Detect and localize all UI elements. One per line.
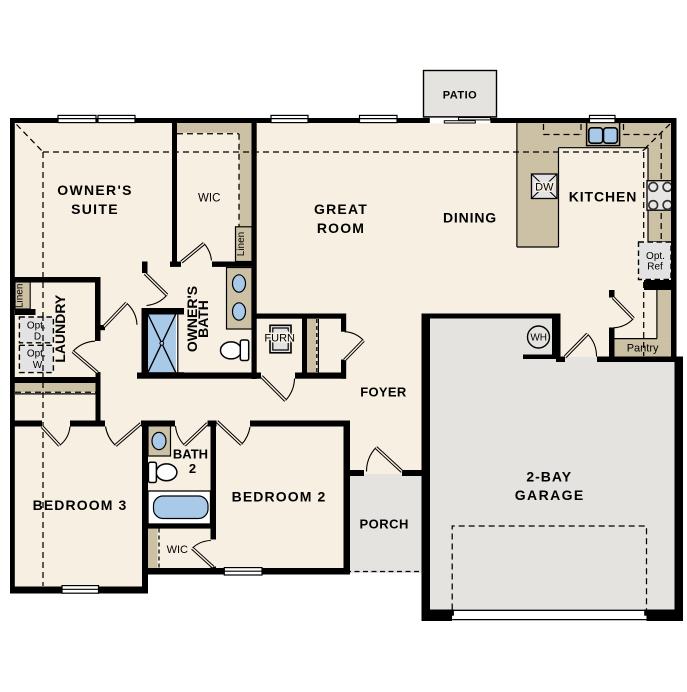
svg-text:BEDROOM 3: BEDROOM 3	[33, 497, 128, 513]
svg-text:Linen: Linen	[236, 232, 247, 256]
svg-text:Opt.: Opt.	[646, 251, 665, 262]
svg-text:WIC: WIC	[198, 193, 220, 205]
svg-text:DW: DW	[535, 181, 554, 193]
svg-text:Ref: Ref	[647, 262, 663, 273]
svg-text:Opt.: Opt.	[27, 321, 46, 332]
svg-text:LAUNDRY: LAUNDRY	[52, 294, 68, 363]
svg-text:WH: WH	[530, 333, 547, 344]
svg-text:Linen: Linen	[14, 284, 25, 308]
svg-text:D: D	[34, 332, 41, 343]
svg-text:KITCHEN: KITCHEN	[569, 189, 638, 205]
svg-text:Pantry: Pantry	[627, 342, 659, 354]
svg-text:DINING: DINING	[443, 210, 497, 226]
svg-text:W: W	[33, 360, 43, 371]
svg-text:ROOM: ROOM	[317, 220, 365, 236]
svg-text:FURN: FURN	[264, 333, 295, 345]
svg-text:BATH: BATH	[173, 446, 208, 461]
svg-text:WIC: WIC	[167, 544, 188, 556]
svg-text:Opt.: Opt.	[27, 348, 46, 359]
svg-text:OWNER'S: OWNER'S	[57, 182, 132, 198]
svg-text:GREAT: GREAT	[314, 201, 368, 217]
svg-text:GARAGE: GARAGE	[515, 487, 585, 503]
svg-text:2-BAY: 2-BAY	[526, 469, 572, 485]
svg-text:2: 2	[189, 461, 196, 476]
svg-text:FOYER: FOYER	[360, 385, 407, 400]
svg-text:BATH: BATH	[195, 300, 211, 338]
svg-text:SUITE: SUITE	[71, 201, 119, 217]
svg-text:BEDROOM 2: BEDROOM 2	[232, 489, 327, 505]
svg-text:PORCH: PORCH	[359, 517, 408, 532]
svg-text:PATIO: PATIO	[443, 89, 477, 101]
